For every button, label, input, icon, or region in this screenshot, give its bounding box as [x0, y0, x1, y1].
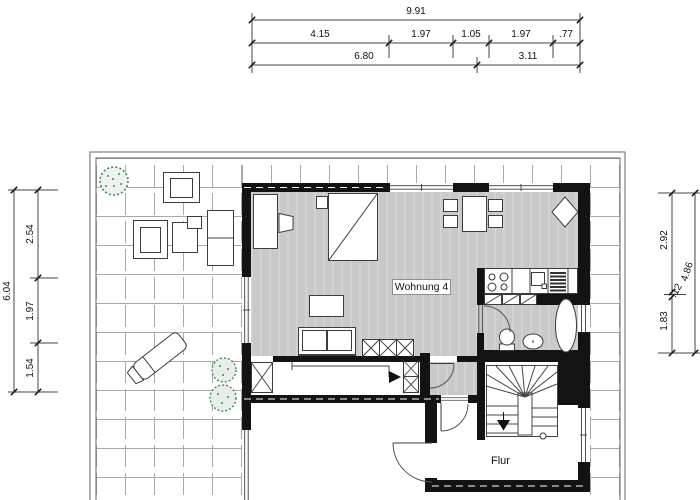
dim-right-seg: 1.83: [660, 311, 670, 330]
base-cabinet: [502, 294, 520, 305]
sofa-cushion: [302, 330, 327, 351]
dining-chair: [443, 199, 458, 212]
dim-top-seg: 1.97: [511, 30, 530, 40]
wall-right: [578, 332, 590, 408]
dim-top-subtotal: 6.80: [354, 52, 373, 62]
door-opening-vestibule: [430, 356, 457, 362]
dim-top-total: 9.91: [406, 7, 425, 17]
terrace-table-top: [140, 227, 161, 253]
wall-hall-west: [425, 403, 437, 443]
window-east-2: [578, 408, 590, 462]
terrace-tiles-right: [590, 158, 620, 500]
wardrobe-x: [403, 360, 419, 377]
wall-corridor-north: [273, 356, 430, 362]
dim-top-seg: 1.05: [461, 30, 480, 40]
dim-left-total: 6.04: [3, 281, 13, 300]
dim-left-seg: 1.54: [26, 358, 36, 377]
nightstand: [316, 196, 328, 209]
dining-chair: [443, 215, 458, 228]
coffee-table: [309, 295, 344, 317]
wall-stairwell-west: [477, 362, 485, 440]
dim-top-subtotal: 3.11: [519, 52, 538, 62]
dim-left-seg: 1.97: [26, 301, 36, 320]
desk: [253, 194, 278, 249]
dining-table: [462, 196, 487, 232]
dim-top-seg: 4.15: [310, 30, 329, 40]
wall-stairwell-east: [558, 355, 578, 405]
floor-plan: 9.91 4.15 1.97 1.05 1.97 .77 6.80 3.11 6…: [0, 0, 700, 500]
dim-left-seg: 2.54: [26, 224, 36, 243]
wall-right: [578, 183, 590, 305]
wardrobe-x: [396, 339, 414, 357]
wall-top: [242, 183, 390, 192]
wall-left: [242, 343, 251, 430]
door-opening-entry: [441, 395, 468, 403]
window-east-1: [578, 305, 590, 332]
wall-kitchen-bath-west: [477, 268, 484, 305]
bed: [328, 193, 378, 261]
wardrobe-x: [251, 362, 273, 393]
terrace-table-top: [170, 178, 193, 198]
dim-right-seg: .12: [669, 282, 685, 299]
wardrobe-x: [403, 376, 419, 393]
terrace-tiles-top: [242, 158, 590, 183]
wall-bath-north: [537, 294, 578, 305]
winder-staircase: [486, 366, 558, 440]
wall-bath-south: [477, 350, 578, 362]
dim-right-seg: 2.92: [660, 230, 670, 249]
window-west-2: [242, 430, 251, 500]
base-cabinet: [520, 294, 537, 305]
corridor-arrow-icon: [292, 362, 401, 383]
terrace-sofa: [207, 210, 234, 266]
window-north-1: [390, 183, 453, 192]
window-north-2: [489, 183, 553, 192]
base-cabinet: [484, 294, 502, 305]
dim-top-seg: .77: [559, 30, 573, 40]
apartment-label: Wohnung 4: [392, 279, 451, 295]
window-west-1: [242, 277, 251, 343]
wall-apartment-south: [242, 395, 441, 403]
wall-top: [453, 183, 489, 192]
dimension-lines-top: [252, 13, 580, 73]
wall-vestibule-north: [457, 356, 477, 362]
dining-chair: [488, 199, 503, 212]
dim-top-seg: 1.97: [411, 30, 430, 40]
wall-left: [242, 183, 251, 277]
stair-arrow-icon: [497, 412, 510, 431]
wardrobe-x: [362, 339, 380, 357]
dining-chair: [488, 215, 503, 228]
entry-vestibule-floor: [428, 356, 477, 396]
hallway-label: Flur: [491, 455, 510, 467]
wall-top: [553, 183, 580, 192]
wall-apartment-south: [468, 395, 477, 403]
sofa-cushion: [327, 330, 352, 351]
terrace-side-table: [187, 216, 202, 229]
kitchen-counter: [484, 268, 578, 294]
dim-right-total: 4.86: [680, 261, 696, 283]
wall-hall-south: [430, 480, 590, 492]
wall-kitchen-bath-west: [477, 333, 484, 358]
wardrobe-x: [379, 339, 397, 357]
